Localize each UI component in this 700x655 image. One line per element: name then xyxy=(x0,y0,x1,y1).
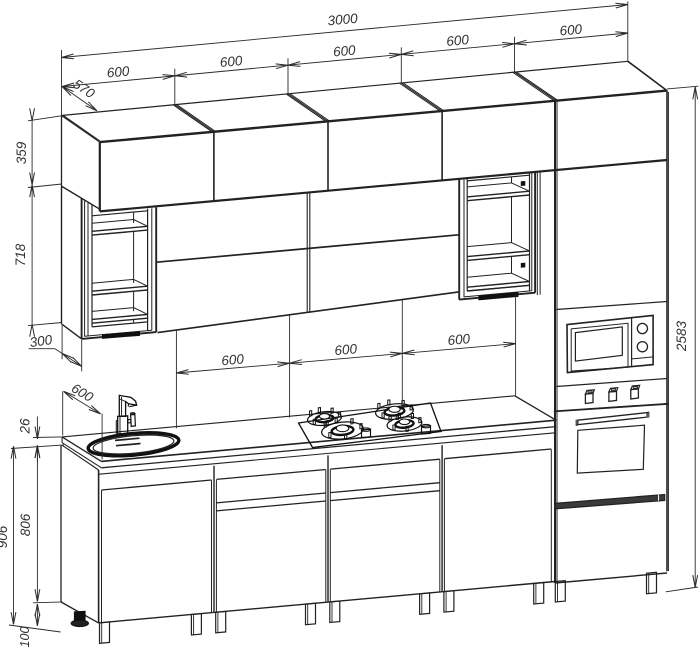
svg-text:600: 600 xyxy=(334,341,358,358)
svg-text:600: 600 xyxy=(106,63,130,80)
svg-text:600: 600 xyxy=(69,380,96,405)
svg-text:26: 26 xyxy=(18,418,33,435)
svg-text:570: 570 xyxy=(70,76,97,101)
svg-text:600: 600 xyxy=(221,351,245,368)
svg-text:2583: 2583 xyxy=(674,320,689,352)
svg-text:600: 600 xyxy=(219,53,243,70)
svg-text:600: 600 xyxy=(559,21,583,38)
svg-text:3000: 3000 xyxy=(327,11,359,29)
svg-text:600: 600 xyxy=(332,42,356,59)
svg-text:718: 718 xyxy=(13,243,28,266)
svg-text:806: 806 xyxy=(18,513,33,536)
svg-text:300: 300 xyxy=(29,332,54,350)
svg-text:600: 600 xyxy=(447,331,471,348)
svg-text:906: 906 xyxy=(0,525,10,548)
svg-text:100: 100 xyxy=(18,627,32,648)
svg-text:600: 600 xyxy=(446,32,470,49)
svg-text:359: 359 xyxy=(14,141,29,164)
